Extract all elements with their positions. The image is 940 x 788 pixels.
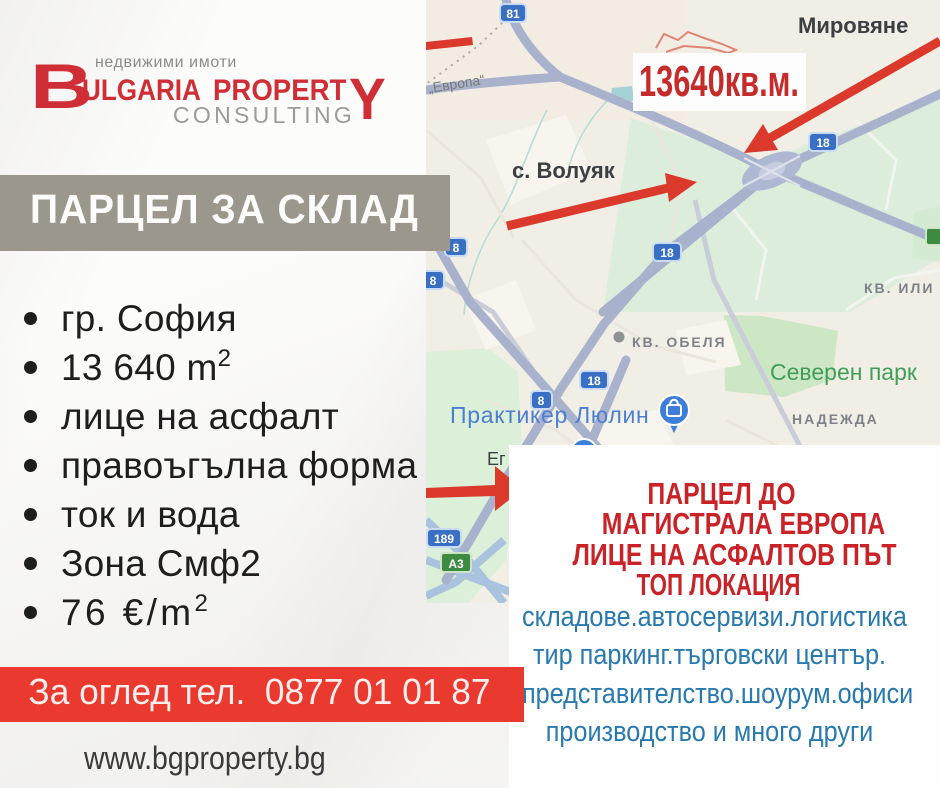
svg-text:8: 8 <box>453 241 460 255</box>
svg-text:Северен парк: Северен парк <box>770 359 918 385</box>
svg-text:8: 8 <box>538 394 545 408</box>
svg-text:КВ. ИЛИ: КВ. ИЛИ <box>864 280 934 296</box>
svg-text:189: 189 <box>434 532 454 546</box>
svg-text:Мировяне: Мировяне <box>798 13 908 38</box>
svg-text:с. Волуяк: с. Волуяк <box>512 158 616 183</box>
svg-text:НАДЕЖДА: НАДЕЖДА <box>792 411 879 427</box>
svg-text:8: 8 <box>430 274 437 288</box>
svg-text:18: 18 <box>660 246 674 260</box>
svg-text:81: 81 <box>506 7 520 21</box>
svg-text:18: 18 <box>816 136 830 150</box>
svg-text:КВ. ОБЕЛЯ: КВ. ОБЕЛЯ <box>632 334 727 350</box>
svg-text:13640кв.м.: 13640кв.м. <box>639 57 799 106</box>
svg-text:18: 18 <box>587 374 601 388</box>
svg-text:A3: A3 <box>448 557 464 571</box>
svg-text:Ег: Ег <box>487 449 506 469</box>
